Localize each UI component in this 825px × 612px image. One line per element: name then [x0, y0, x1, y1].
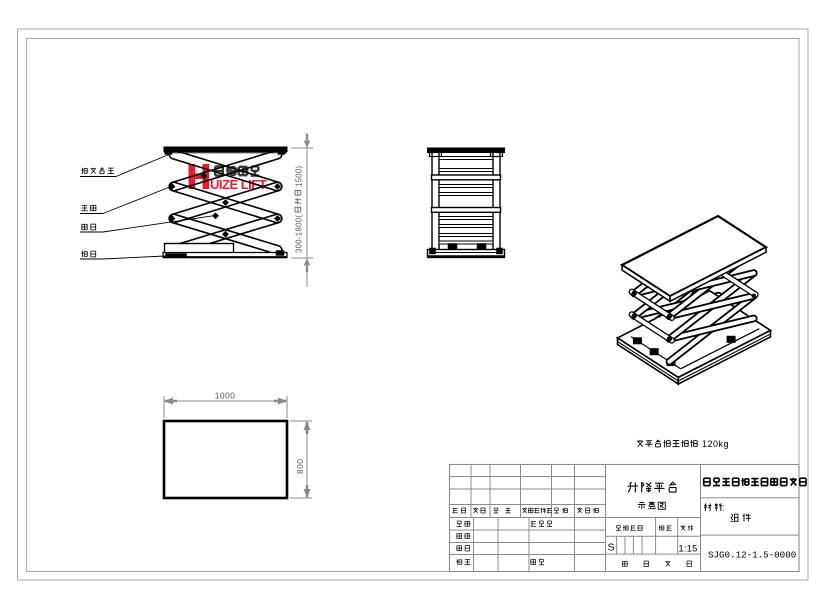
svg-text:S: S: [608, 542, 615, 554]
svg-text:300-1800(: 300-1800(: [295, 215, 304, 253]
svg-text:1:15: 1:15: [679, 544, 698, 554]
svg-text:800: 800: [295, 459, 305, 474]
svg-text::: :: [723, 503, 726, 513]
svg-text:120kg: 120kg: [702, 439, 729, 449]
svg-text:SJG0.12-1.5-0000: SJG0.12-1.5-0000: [708, 550, 796, 561]
svg-text:1000: 1000: [215, 391, 236, 401]
svg-text:1500): 1500): [295, 165, 304, 187]
